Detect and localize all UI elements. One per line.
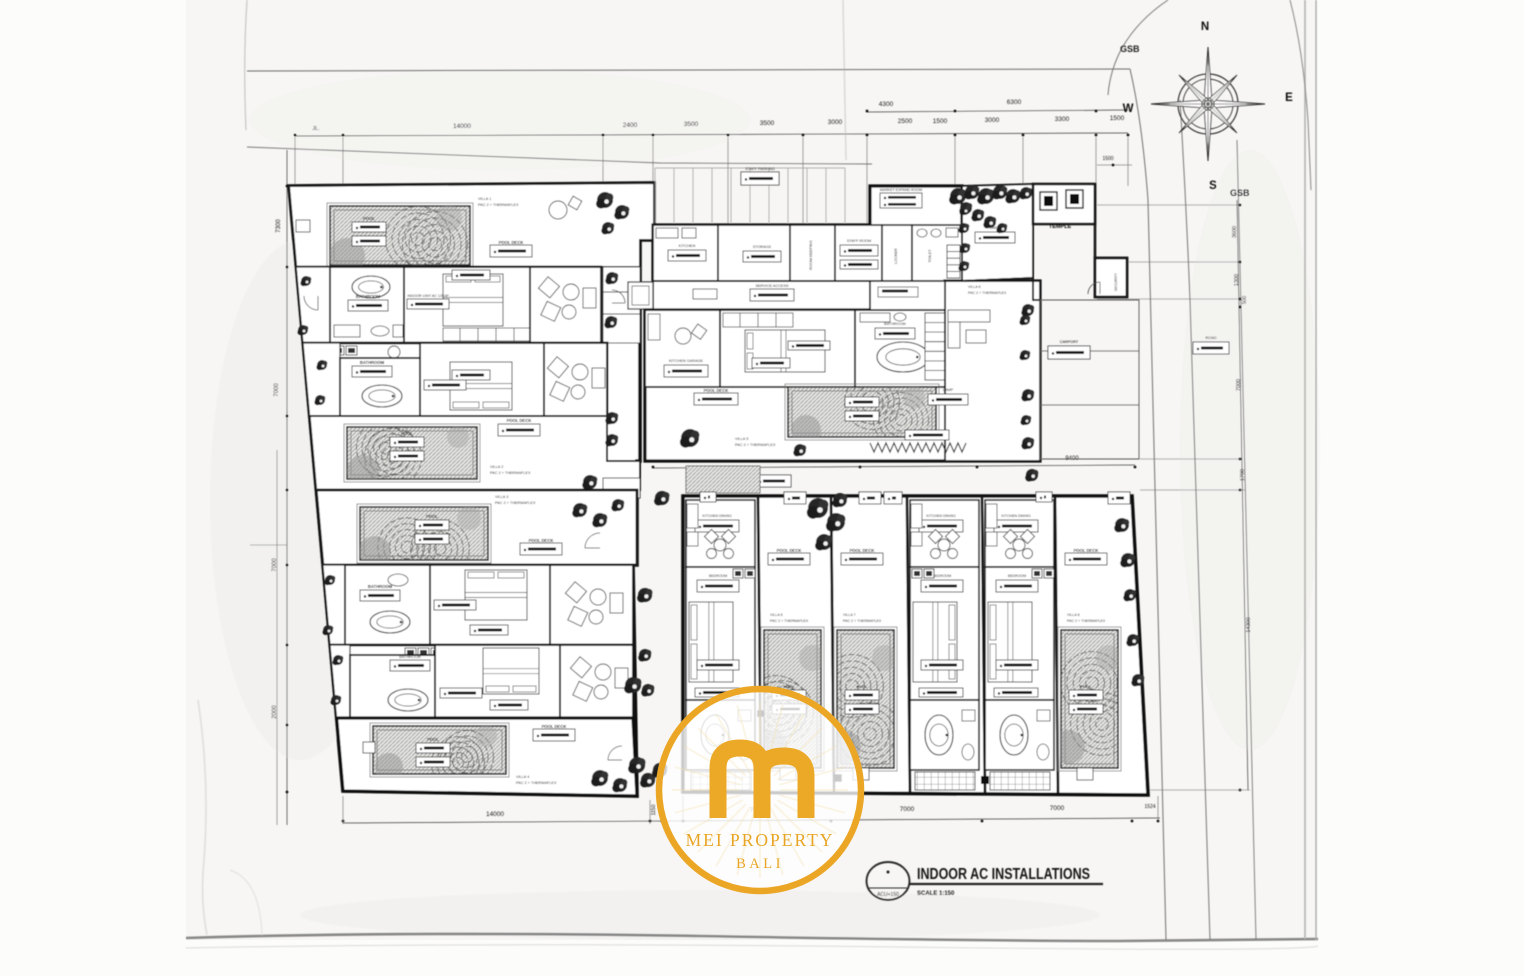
svg-text:POOL: POOL (1080, 684, 1092, 689)
svg-text:7000: 7000 (900, 806, 915, 813)
svg-text:KITCHEN DINING: KITCHEN DINING (702, 514, 732, 518)
svg-text:PAC 2 + THERMAFLEX: PAC 2 + THERMAFLEX (1067, 619, 1106, 623)
svg-text:1150: 1150 (651, 804, 657, 815)
svg-text:PAC 2 + THERMAFLEX: PAC 2 + THERMAFLEX (843, 619, 882, 623)
svg-text:TEMPLE: TEMPLE (1049, 224, 1072, 230)
svg-text:7000: 7000 (1236, 379, 1242, 391)
svg-text:BEDROOM: BEDROOM (709, 574, 728, 578)
svg-text:BEDROOM: BEDROOM (933, 574, 952, 578)
svg-text:POOL DECK: POOL DECK (777, 548, 802, 553)
svg-text:VILLA 4: VILLA 4 (516, 775, 529, 779)
svg-text:1500: 1500 (1102, 156, 1113, 162)
svg-text:14000: 14000 (486, 811, 504, 818)
svg-text:1500: 1500 (1110, 115, 1125, 122)
svg-text:POOL DECK: POOL DECK (1074, 548, 1099, 553)
svg-text:3500: 3500 (760, 120, 775, 127)
svg-text:BATHROOM: BATHROOM (356, 294, 381, 299)
svg-text:3500: 3500 (684, 121, 699, 128)
svg-text:BEDROOM: BEDROOM (461, 265, 481, 269)
svg-text:VILLA 1: VILLA 1 (478, 197, 491, 201)
svg-text:SECURITY: SECURITY (1114, 272, 1118, 291)
svg-text:VILLA 6: VILLA 6 (968, 285, 981, 289)
svg-text:BATHROOM: BATHROOM (399, 655, 421, 659)
svg-text:POOL DECK: POOL DECK (507, 418, 532, 423)
svg-text:LOCKER: LOCKER (894, 248, 898, 264)
svg-text:PAC 2 + THERMAFLEX: PAC 2 + THERMAFLEX (968, 291, 1007, 295)
svg-text:MARKET EXPAND ROOM: MARKET EXPAND ROOM (880, 188, 923, 192)
svg-text:PAC 2 + THERMAFLEX: PAC 2 + THERMAFLEX (495, 501, 536, 505)
svg-text:SCALE 1:150: SCALE 1:150 (917, 891, 955, 897)
svg-text:POOL DECK: POOL DECK (704, 388, 729, 393)
svg-text:STAFF PARKING: STAFF PARKING (745, 167, 775, 171)
svg-text:S: S (1209, 180, 1217, 192)
svg-text:3600: 3600 (1232, 226, 1238, 238)
svg-text:3000: 3000 (985, 117, 1000, 124)
svg-text:ROOM KEEPING: ROOM KEEPING (809, 240, 813, 270)
svg-text:7000: 7000 (1050, 805, 1065, 812)
svg-text:GSB: GSB (1230, 188, 1250, 198)
svg-text:POOL: POOL (401, 431, 413, 436)
svg-text:POOL: POOL (783, 684, 795, 689)
svg-text:7000: 7000 (274, 383, 280, 397)
svg-text:N: N (1201, 21, 1209, 33)
svg-text:KITCHEN DINING: KITCHEN DINING (1001, 514, 1031, 518)
svg-text:POOL: POOL (363, 216, 375, 221)
svg-text:VILLA 8: VILLA 8 (1067, 613, 1080, 617)
svg-text:VILLA 5: VILLA 5 (735, 437, 748, 441)
svg-text:BEDROOM: BEDROOM (1008, 574, 1027, 578)
svg-text:1500: 1500 (933, 118, 948, 125)
svg-text:14000: 14000 (453, 123, 471, 130)
svg-text:KITCHEN: KITCHEN (679, 244, 696, 248)
svg-text:ACU+150: ACU+150 (877, 892, 899, 898)
svg-text:6300: 6300 (1007, 99, 1022, 106)
svg-text:PAC 2 + THERMAFLEX: PAC 2 + THERMAFLEX (478, 203, 519, 207)
svg-text:BATHROOM: BATHROOM (368, 584, 393, 589)
svg-text:POOL DECK: POOL DECK (499, 240, 524, 245)
svg-text:STORAGE: STORAGE (753, 245, 772, 249)
svg-text:PAC 2 + THERMAFLEX: PAC 2 + THERMAFLEX (770, 619, 809, 623)
svg-text:BALI: BALI (736, 856, 784, 872)
svg-text:2500: 2500 (898, 118, 913, 125)
svg-text:GSB: GSB (1120, 44, 1140, 54)
svg-text:POOL: POOL (427, 737, 439, 742)
svg-text:INDOOR AC INSTALLATIONS: INDOOR AC INSTALLATIONS (917, 866, 1090, 883)
svg-text:BATHROOM: BATHROOM (884, 322, 906, 326)
svg-text:1300: 1300 (1234, 274, 1240, 286)
svg-text:PAC 2 + THERMAFLEX: PAC 2 + THERMAFLEX (735, 443, 776, 447)
svg-text:POOL: POOL (426, 514, 438, 519)
svg-text:PAC 2 + THERMAFLEX: PAC 2 + THERMAFLEX (516, 781, 557, 785)
svg-text:1700: 1700 (1240, 469, 1246, 481)
svg-text:E: E (1285, 92, 1293, 104)
svg-text:VILLA 3: VILLA 3 (495, 495, 508, 499)
svg-text:SERVICE ACCESS: SERVICE ACCESS (755, 284, 789, 288)
svg-text:JL.: JL. (312, 126, 320, 132)
svg-text:3300: 3300 (1055, 116, 1070, 123)
svg-text:VILLA 2: VILLA 2 (490, 465, 503, 469)
svg-text:2400: 2400 (623, 122, 638, 129)
svg-text:VILLA 7: VILLA 7 (843, 613, 856, 617)
svg-text:POOL: POOL (856, 684, 868, 689)
svg-text:PAC 2 + THERMAFLEX: PAC 2 + THERMAFLEX (490, 471, 531, 475)
svg-text:POOL DECK: POOL DECK (529, 538, 554, 543)
svg-text:ROAD: ROAD (1206, 336, 1217, 340)
svg-text:STAFF ROOM: STAFF ROOM (847, 239, 872, 243)
svg-text:KITCHEN GARAGE: KITCHEN GARAGE (669, 359, 703, 363)
svg-text:4300: 4300 (879, 101, 894, 108)
svg-text:500: 500 (1242, 296, 1248, 305)
svg-text:POOL DECK: POOL DECK (850, 548, 875, 553)
svg-text:1524: 1524 (1144, 804, 1155, 810)
svg-text:POOL DECK: POOL DECK (542, 724, 567, 729)
svg-text:MEI PROPERTY: MEI PROPERTY (686, 830, 835, 850)
svg-text:7300: 7300 (276, 219, 282, 233)
svg-text:LAMP: LAMP (943, 388, 954, 392)
svg-text:14300: 14300 (1246, 617, 1252, 632)
svg-text:CARPORT: CARPORT (1060, 340, 1079, 344)
svg-text:VILLA 6: VILLA 6 (770, 613, 783, 617)
svg-text:TOILET: TOILET (928, 249, 932, 263)
svg-text:W: W (1123, 103, 1134, 115)
svg-text:INDOOR UNIT AC 1/2 HP: INDOOR UNIT AC 1/2 HP (407, 294, 449, 298)
svg-text:KITCHEN DINING: KITCHEN DINING (926, 514, 956, 518)
svg-text:3000: 3000 (828, 119, 843, 126)
svg-text:BATHROOM: BATHROOM (360, 360, 385, 365)
